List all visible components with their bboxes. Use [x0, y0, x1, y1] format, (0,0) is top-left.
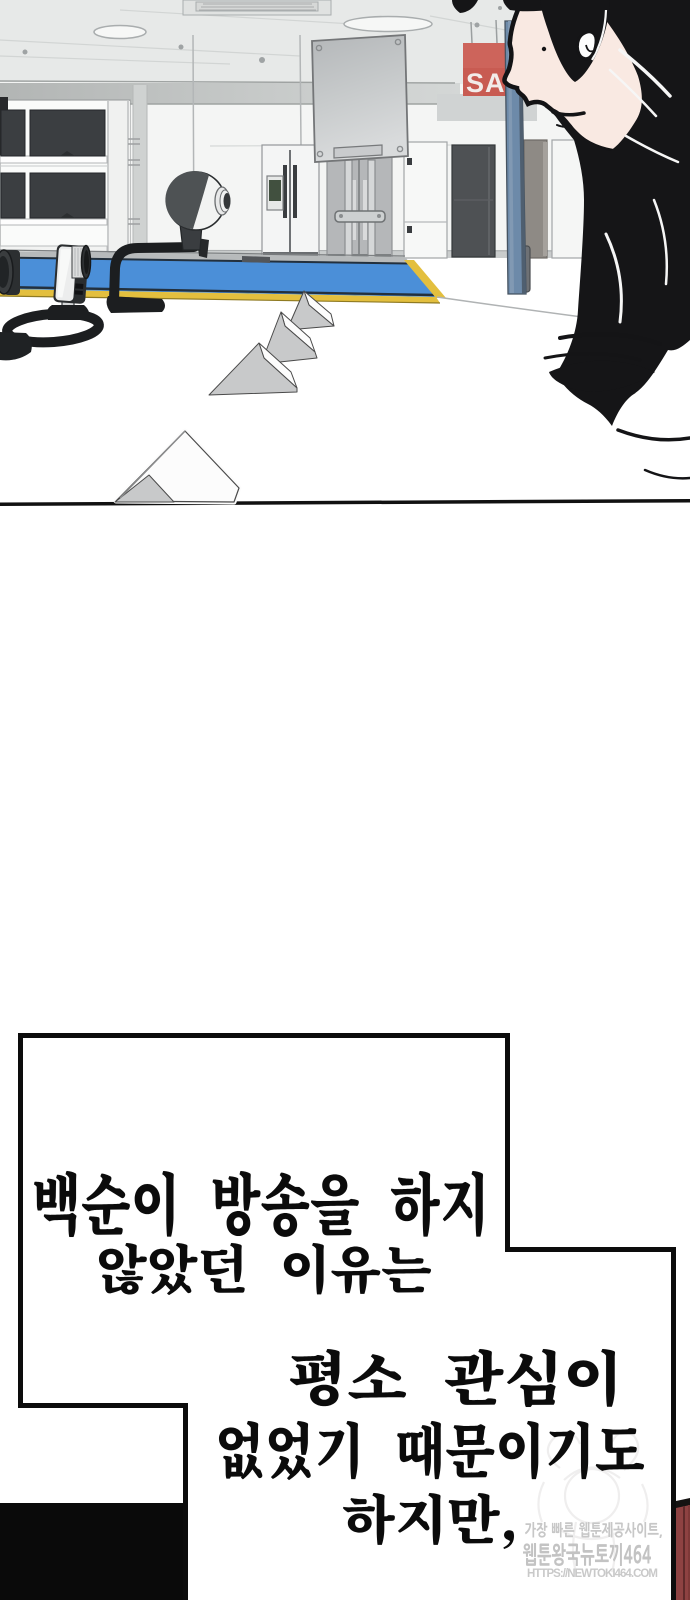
svg-text:A: A	[485, 68, 505, 98]
svg-text:S: S	[466, 68, 484, 98]
svg-text:HTTPS://NEWTOKI464.COM: HTTPS://NEWTOKI464.COM	[527, 1568, 658, 1580]
